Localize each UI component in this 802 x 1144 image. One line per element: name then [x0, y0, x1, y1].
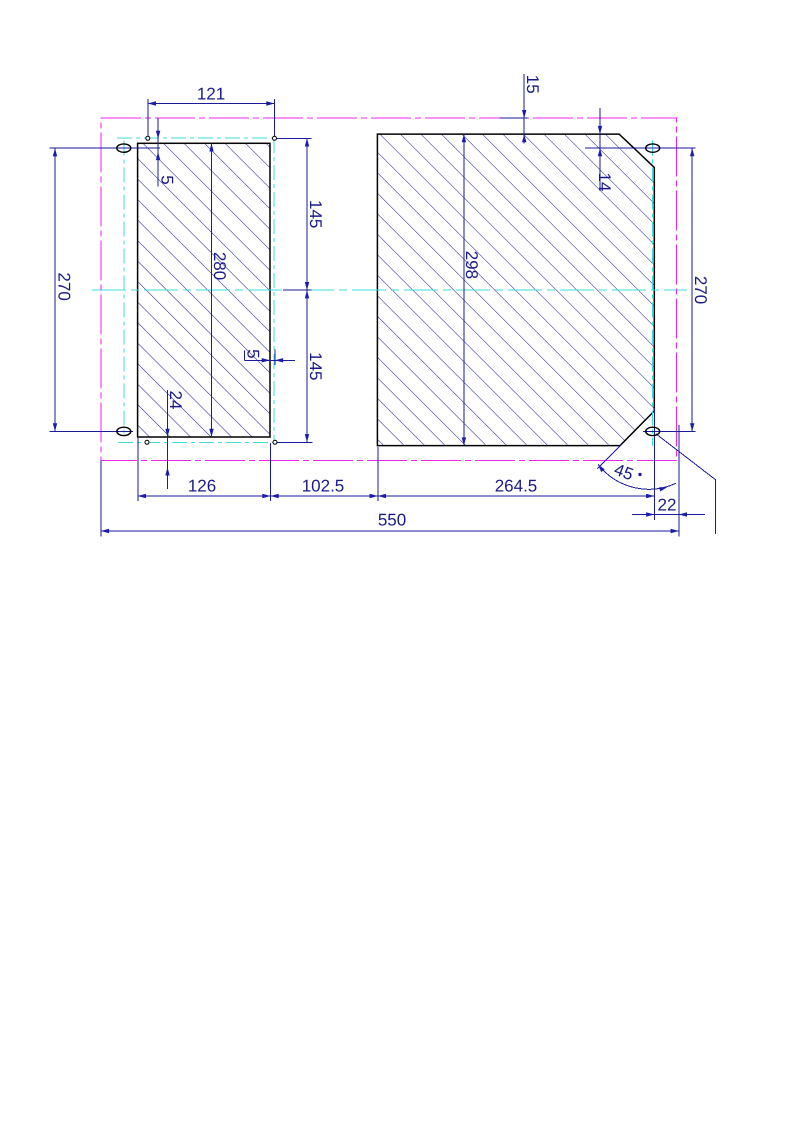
svg-text:15: 15 [523, 75, 542, 94]
svg-text:270: 270 [691, 276, 710, 304]
svg-text:5: 5 [158, 175, 177, 184]
svg-text:22: 22 [658, 496, 677, 515]
svg-text:126: 126 [188, 477, 216, 496]
svg-text:264.5: 264.5 [495, 477, 538, 496]
svg-text:550: 550 [378, 511, 406, 530]
svg-text:14: 14 [595, 173, 614, 192]
svg-text:121: 121 [197, 85, 225, 104]
svg-text:270: 270 [55, 272, 74, 300]
svg-text:5: 5 [244, 349, 263, 358]
svg-text:102.5: 102.5 [302, 477, 345, 496]
svg-text:145: 145 [306, 200, 325, 228]
svg-text:145: 145 [306, 352, 325, 380]
svg-text:298: 298 [462, 251, 481, 279]
svg-text:280: 280 [210, 252, 229, 280]
svg-text:24: 24 [166, 391, 185, 410]
